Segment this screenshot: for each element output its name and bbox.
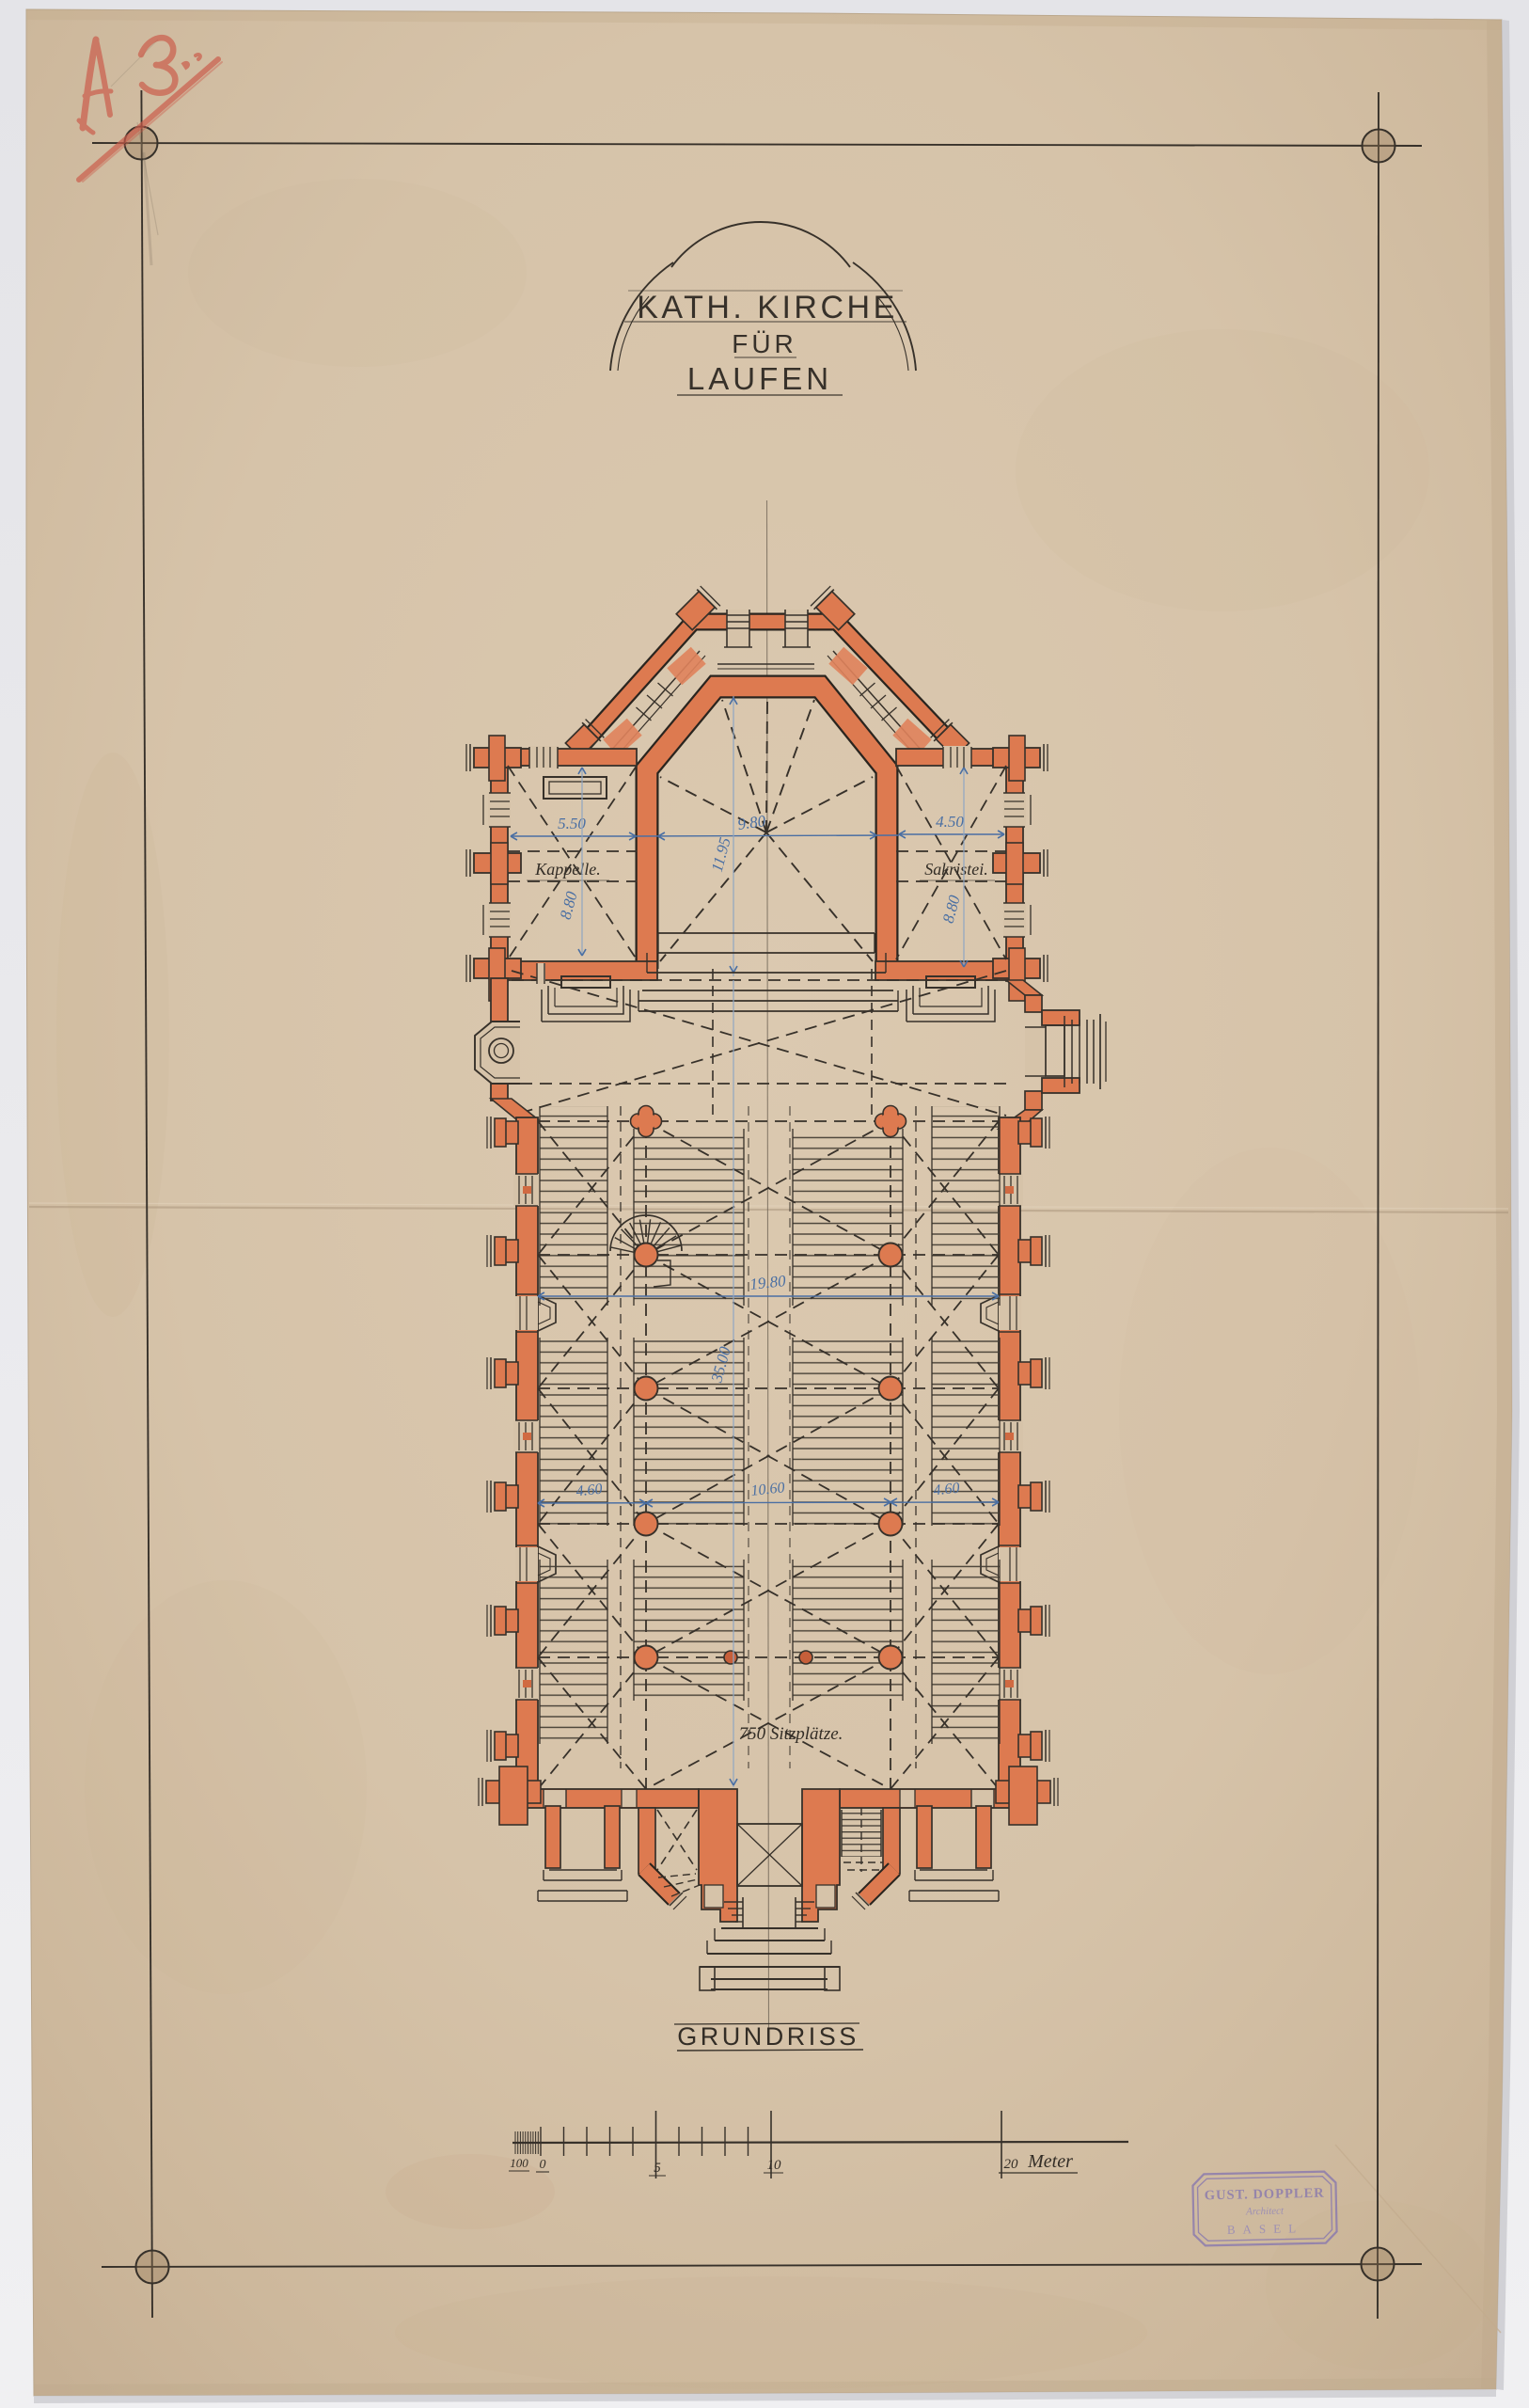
svg-text:4.50: 4.50	[936, 813, 964, 831]
svg-text:LAUFEN: LAUFEN	[687, 361, 832, 396]
svg-text:KATH. KIRCHE: KATH. KIRCHE	[637, 290, 898, 325]
svg-text:GRUNDRISS: GRUNDRISS	[677, 2022, 859, 2051]
svg-text:10: 10	[767, 2158, 782, 2173]
svg-text:Kappelle.: Kappelle.	[534, 860, 601, 879]
svg-text:GUST. DOPPLER: GUST. DOPPLER	[1205, 2186, 1325, 2204]
svg-text:5: 5	[654, 2161, 661, 2176]
svg-text:Meter: Meter	[1027, 2151, 1073, 2172]
svg-text:100: 100	[510, 2156, 528, 2170]
svg-text:4.60: 4.60	[575, 1481, 604, 1500]
svg-text:20: 20	[1004, 2157, 1019, 2172]
svg-text:FÜR: FÜR	[732, 329, 797, 358]
svg-text:Architect: Architect	[1245, 2206, 1285, 2218]
svg-text:Sakristei.: Sakristei.	[924, 860, 988, 879]
svg-text:0: 0	[540, 2158, 546, 2172]
svg-text:4.60: 4.60	[933, 1481, 961, 1499]
svg-text:750 Sitzplätze.: 750 Sitzplätze.	[739, 1724, 843, 1744]
svg-text:BASEL: BASEL	[1227, 2221, 1303, 2237]
svg-text:19.80: 19.80	[749, 1272, 787, 1293]
